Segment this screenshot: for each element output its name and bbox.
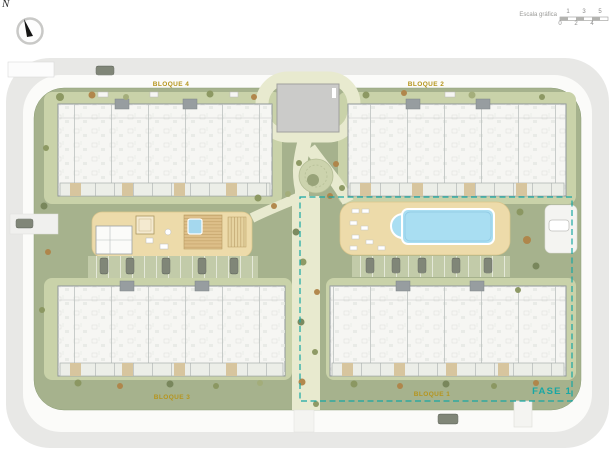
building-bloque-4 xyxy=(58,99,272,196)
label-bloque-3: BLOQUE 3 xyxy=(137,394,207,401)
scale-tick-5: 5 xyxy=(596,9,604,15)
swimming-pool xyxy=(402,209,494,244)
playground xyxy=(299,159,333,193)
car xyxy=(438,414,458,424)
scale-tick-4: 4 xyxy=(588,21,596,27)
path-central xyxy=(292,196,320,410)
spa-pool xyxy=(188,219,202,234)
scale-bar-label: Escala gráfica xyxy=(503,12,557,18)
scale-tick-3: 3 xyxy=(580,9,588,15)
pavilion xyxy=(136,216,154,234)
pool-deck xyxy=(340,202,510,255)
scale-bar xyxy=(560,17,608,21)
road-layby xyxy=(8,62,54,77)
scale-tick-0: 0 xyxy=(556,21,564,27)
central-building xyxy=(277,84,339,132)
label-bloque-1: BLOQUE 1 xyxy=(397,391,467,398)
north-arrow-icon xyxy=(18,19,43,44)
car xyxy=(16,219,33,228)
clubhouse-deck xyxy=(92,212,252,257)
building-bloque-1 xyxy=(330,281,566,376)
label-bloque-2: BLOQUE 2 xyxy=(391,81,461,88)
label-fase-1: FASE 1 xyxy=(524,386,572,397)
car xyxy=(96,66,114,75)
white-car xyxy=(549,220,569,231)
pergola xyxy=(228,217,246,247)
scale-tick-2: 2 xyxy=(572,21,580,27)
site-plan-canvas: N Escala gráfica 0 1 2 3 4 5 BLOQUE 4 BL… xyxy=(0,0,615,454)
building-bloque-3 xyxy=(58,281,285,376)
scale-tick-1: 1 xyxy=(564,9,572,15)
compass-north-label: N xyxy=(2,0,9,10)
site-plan-drawing xyxy=(0,0,615,454)
label-bloque-4: BLOQUE 4 xyxy=(136,81,206,88)
building-bloque-2 xyxy=(348,99,566,196)
